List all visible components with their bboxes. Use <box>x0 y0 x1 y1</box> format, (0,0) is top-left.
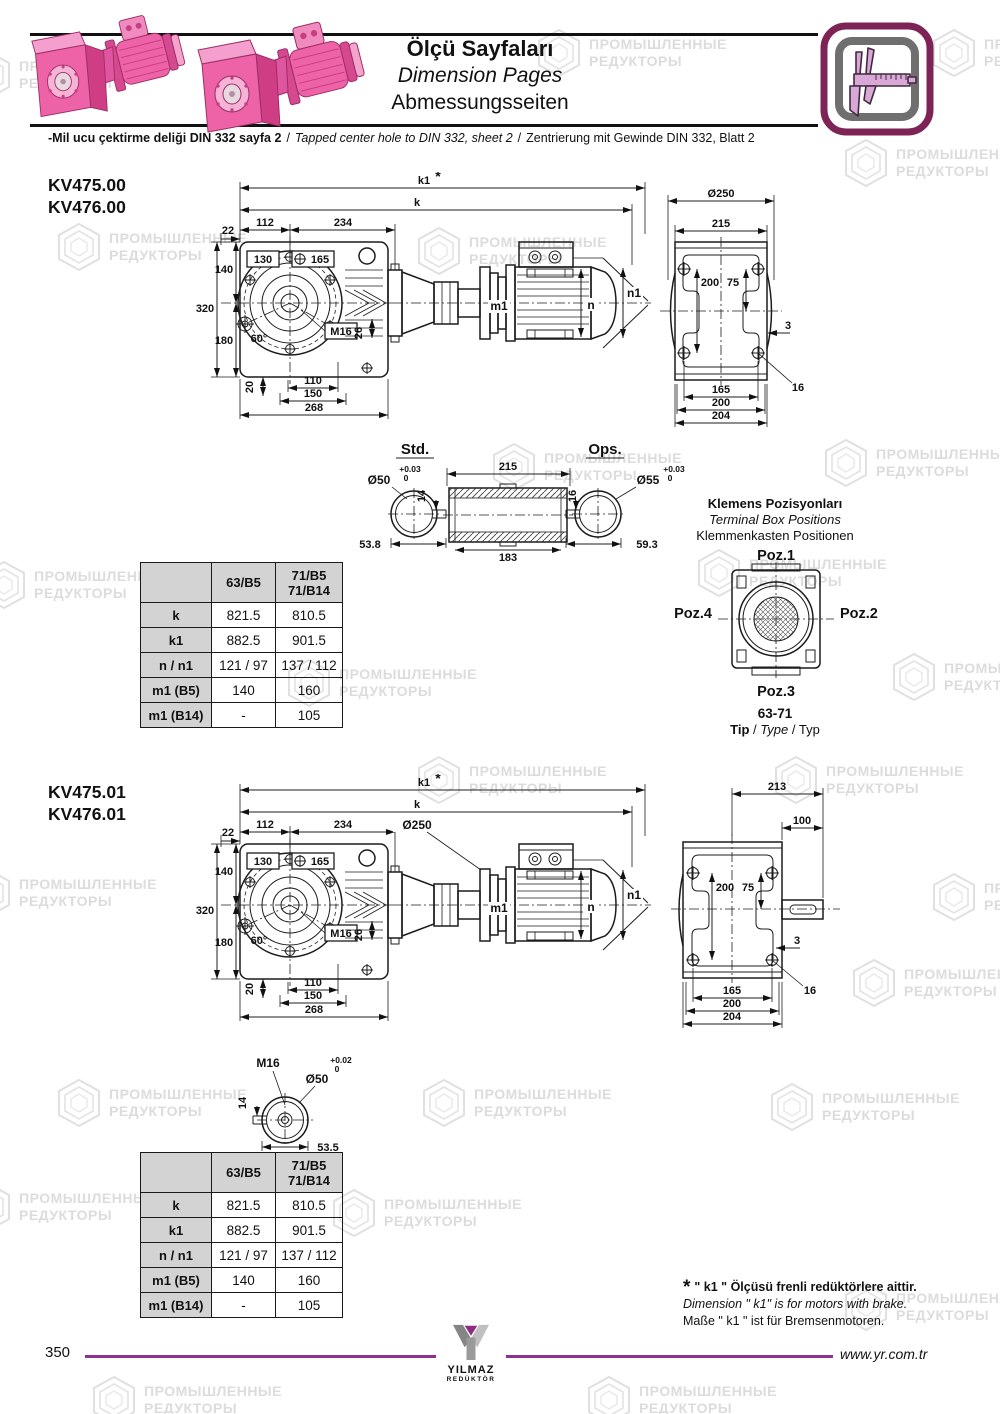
page-title: Ölçü Sayfaları Dimension Pages Abmessung… <box>330 36 630 116</box>
dim-200b: 200 <box>712 397 730 409</box>
brake-tol-lo: 0 <box>335 1064 340 1074</box>
subtitle-turkish: -Mil ucu çektirme deliği DIN 332 sayfa 2 <box>48 131 281 145</box>
dim-16: 16 <box>804 985 816 997</box>
drawing-kv475-00-front <box>195 172 655 438</box>
page-number: 350 <box>45 1344 70 1361</box>
dim-204: 204 <box>712 410 731 422</box>
gearmotor-photos <box>28 4 373 134</box>
table-corner-cell <box>141 563 212 603</box>
dim-215: 215 <box>712 218 730 230</box>
shaft-options-drawing: Std. Ø50 +0.03 0 14 53.8 215 183 <box>352 438 697 563</box>
model-labels-kv475-01: KV475.01 KV476.01 <box>48 781 126 825</box>
terminal-title-german: Klemmenkasten Positionen <box>650 528 900 543</box>
dim-dia250-brake: Ø250 <box>402 818 432 832</box>
motor-face-drawing <box>718 562 834 678</box>
title-turkish: Ölçü Sayfaları <box>330 36 630 62</box>
footnote-english: Dimension " k1" is for motors with brake… <box>683 1296 943 1313</box>
model-kv476-00: KV476.00 <box>48 196 126 218</box>
drawing-kv475-01-front: Ø250 <box>195 774 655 1044</box>
model-labels-kv475-00: KV475.00 KV476.00 <box>48 174 126 218</box>
drawing-kv475-00-side: Ø250 215 200 75 3 16 16 <box>640 185 840 435</box>
type-label: Tip / Type / Typ <box>650 722 900 737</box>
std-key-height: 14 <box>416 489 428 502</box>
logo-text-yilmaz: YILMAZ <box>436 1365 506 1376</box>
dimension-table-1: 63/B5 71/B571/B14 k821.5810.5 k1882.5901… <box>140 562 343 728</box>
table-row: k821.5810.5 <box>141 603 343 628</box>
ops-tol-lo: 0 <box>668 473 673 483</box>
brake-key-height: 14 <box>237 1096 249 1109</box>
std-tol-hi: +0.03 <box>399 464 421 474</box>
title-english: Dimension Pages <box>330 62 630 89</box>
std-label: Std. <box>401 441 429 458</box>
dim-204: 204 <box>723 1011 742 1023</box>
poz2-label: Poz.2 <box>840 606 878 622</box>
footnote-german: Maße " k1 " ist für Bremsenmotoren. <box>683 1313 943 1330</box>
dim-dia250: Ø250 <box>708 188 735 200</box>
title-german: Abmessungsseiten <box>330 89 630 116</box>
subtitle-english: Tapped center hole to DIN 332, sheet 2 <box>295 131 513 145</box>
hollow-length-inner: 183 <box>499 552 517 563</box>
table-row: m1 (B14)-105 <box>141 1293 343 1318</box>
table-row: m1 (B14)-105 <box>141 703 343 728</box>
caliper-icon <box>820 22 934 136</box>
model-kv475-00: KV475.00 <box>48 174 126 196</box>
table-row: n / n1121 / 97137 / 112 <box>141 1243 343 1268</box>
table-row: k1882.5901.5 <box>141 1218 343 1243</box>
table-row: m1 (B5)140160 <box>141 1268 343 1293</box>
table-row: n / n1121 / 97137 / 112 <box>141 653 343 678</box>
table-row: k821.5810.5 <box>141 1193 343 1218</box>
dim-165b: 165 <box>712 384 730 396</box>
brake-shaft-detail: M16 +0.02 0 Ø50 14 53.5 <box>225 1053 425 1155</box>
drawing-kv475-01-side: 213 100 200 75 3 16 <box>655 778 895 1038</box>
std-width: 53.8 <box>359 539 380 551</box>
ops-key-height: 16 <box>567 490 579 502</box>
terminal-title-turkish: Klemens Pozisyonları <box>650 496 900 511</box>
footnote-turkish: *" k1 " Ölçüsü frenli redüktörlere aitti… <box>683 1279 943 1296</box>
page-content: Ölçü Sayfaları Dimension Pages Abmessung… <box>0 0 1000 1414</box>
k1-footnote: *" k1 " Ölçüsü frenli redüktörlere aitti… <box>683 1279 943 1330</box>
table-corner-cell <box>141 1153 212 1193</box>
col-63-b5: 63/B5 <box>212 563 276 603</box>
dim-3: 3 <box>794 935 800 947</box>
dim-100: 100 <box>793 815 811 827</box>
ops-diameter: Ø55 <box>637 473 660 487</box>
brake-tol-hi: +0.02 <box>330 1055 352 1065</box>
hollow-length-outer: 215 <box>499 461 517 473</box>
model-kv475-01: KV475.01 <box>48 781 126 803</box>
ops-tol-hi: +0.03 <box>663 464 685 474</box>
table-row: m1 (B5)140160 <box>141 678 343 703</box>
footer-url: www.yr.com.tr <box>840 1346 927 1362</box>
poz3-label: Poz.3 <box>650 684 902 700</box>
table-row: k1882.5901.5 <box>141 628 343 653</box>
yilmaz-logo-icon <box>448 1324 494 1360</box>
ops-label: Ops. <box>588 441 621 458</box>
dim-75: 75 <box>742 882 754 894</box>
col-71: 71/B571/B14 <box>276 563 343 603</box>
type-range: 63-71 <box>650 706 900 721</box>
poz4-label: Poz.4 <box>650 606 712 622</box>
dim-16: 16 <box>792 382 804 394</box>
dim-200v: 200 <box>716 882 734 894</box>
brake-diameter: Ø50 <box>306 1072 329 1086</box>
catalog-page: k1 * k 112 234 22 320 <box>0 0 1000 1414</box>
asterisk: * <box>683 1277 690 1298</box>
model-kv476-01: KV476.01 <box>48 803 126 825</box>
yilmaz-logo: YILMAZ REDÜKTÖR <box>436 1324 506 1384</box>
col-71: 71/B571/B14 <box>276 1153 343 1193</box>
dim-200v: 200 <box>701 277 719 289</box>
dim-200b: 200 <box>723 998 741 1010</box>
std-diameter: Ø50 <box>368 473 391 487</box>
brake-m16: M16 <box>256 1056 280 1070</box>
subtitle: -Mil ucu çektirme deliği DIN 332 sayfa 2… <box>48 131 755 145</box>
dim-3: 3 <box>785 320 791 332</box>
dim-165b: 165 <box>723 985 741 997</box>
dim-75: 75 <box>727 277 739 289</box>
col-63-b5: 63/B5 <box>212 1153 276 1193</box>
std-tol-lo: 0 <box>404 473 409 483</box>
terminal-title-english: Terminal Box Positions <box>650 512 900 527</box>
dim-213: 213 <box>768 781 786 793</box>
logo-text-reduktor: REDÜKTÖR <box>436 1376 506 1384</box>
dimension-table-2: 63/B5 71/B571/B14 k821.5810.5 k1882.5901… <box>140 1152 343 1318</box>
subtitle-german: Zentrierung mit Gewinde DIN 332, Blatt 2 <box>526 131 755 145</box>
terminal-box-positions: Klemens Pozisyonları Terminal Box Positi… <box>650 496 900 738</box>
